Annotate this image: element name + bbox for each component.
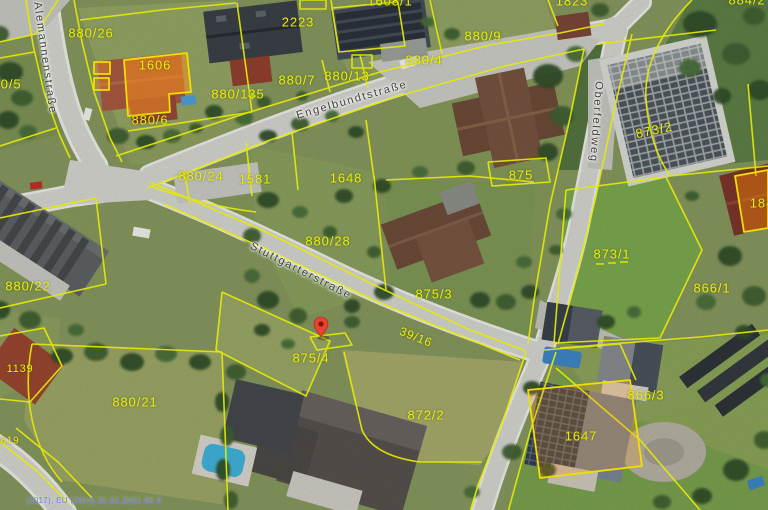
map-viewport[interactable]: AlemannenstraßeEngelbundtstraßeStuttgart… [0, 0, 768, 510]
marker-pin-dot [318, 321, 323, 326]
marker-shadow [318, 336, 330, 341]
photo-grain [0, 0, 768, 510]
aerial-map[interactable] [0, 0, 768, 510]
attribution-text: (2017), EU (2014) 31.01.2021 3K 8 [26, 496, 162, 505]
